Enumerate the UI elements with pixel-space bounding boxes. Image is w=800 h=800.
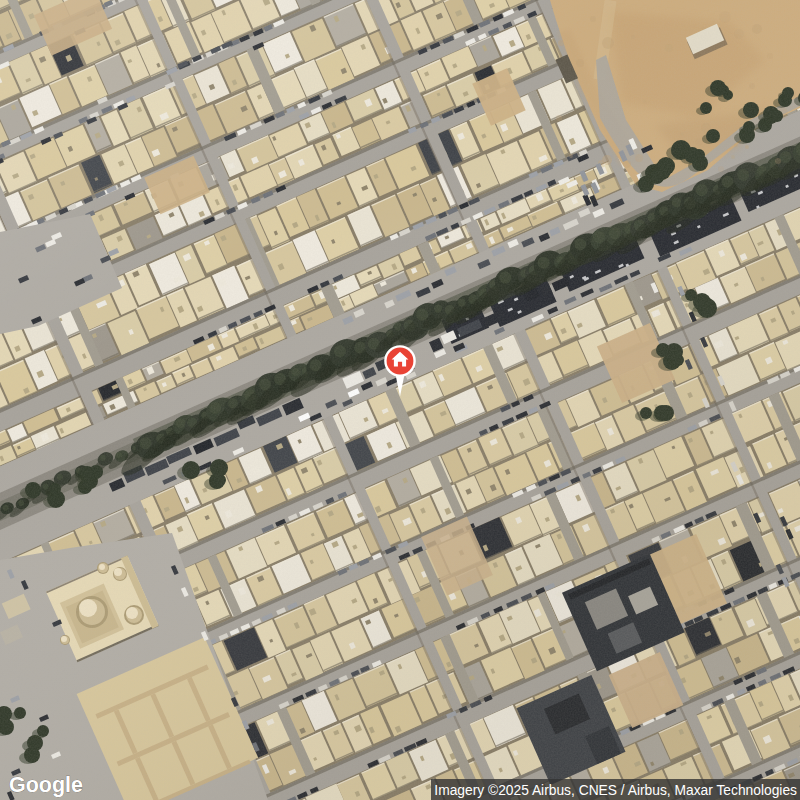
svg-text:Imagery ©2025 Airbus, CNES / A: Imagery ©2025 Airbus, CNES / Airbus, Max… [434,783,797,798]
svg-text:Google: Google [9,773,83,797]
